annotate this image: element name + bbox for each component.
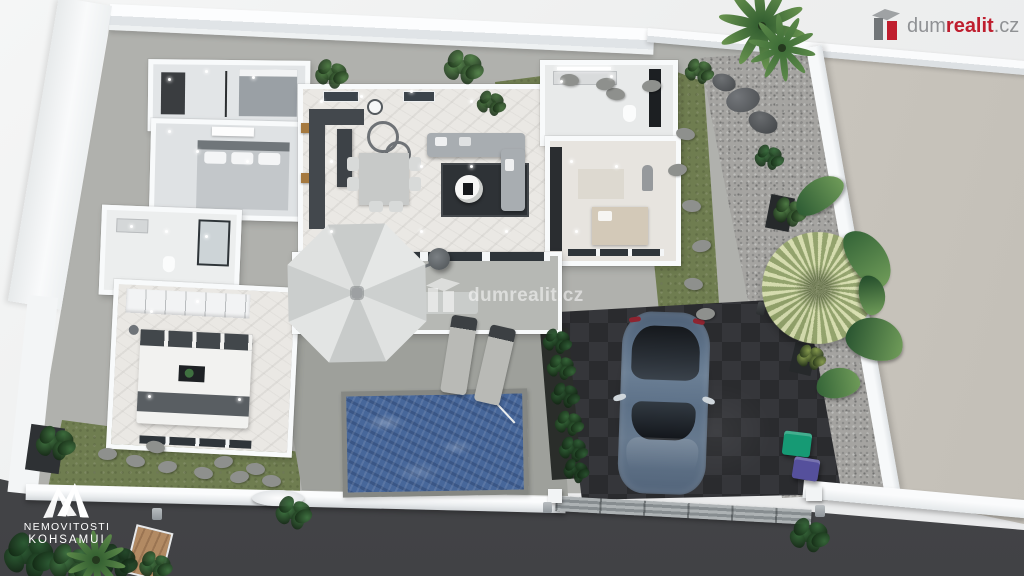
ceiling-spotlight xyxy=(470,100,473,103)
palm-center xyxy=(92,556,100,564)
rug xyxy=(578,169,624,199)
bed xyxy=(196,140,290,210)
dumrealit-box-icon xyxy=(426,276,460,316)
sofa-pillow xyxy=(459,137,471,146)
coffee-table-books xyxy=(463,183,473,195)
dining-chair xyxy=(369,201,383,212)
window xyxy=(323,91,359,102)
pillow xyxy=(204,151,226,164)
pillow xyxy=(258,153,280,166)
ceiling-spotlight xyxy=(470,165,473,168)
ceiling-spotlight xyxy=(410,90,413,93)
ceiling-spotlight xyxy=(196,150,199,153)
wall-lamp xyxy=(152,508,162,520)
ceiling-spotlight xyxy=(205,70,208,73)
dining-chair xyxy=(409,177,421,191)
ceiling-spotlight xyxy=(246,160,249,163)
ceiling-spotlight xyxy=(150,310,153,313)
mannequin xyxy=(642,165,653,191)
ceiling-spotlight xyxy=(165,230,168,233)
dumrealit-logo: dumrealit.cz xyxy=(872,8,1019,44)
wall-lamp xyxy=(815,505,825,517)
dining-chair xyxy=(347,157,359,171)
gate-pillar xyxy=(806,486,822,501)
ceiling-spotlight xyxy=(168,130,171,133)
agency-logo: NEMOVITOSTI KOHSAMUI xyxy=(8,482,126,546)
gate-pillar xyxy=(548,489,562,503)
led-mirror xyxy=(557,67,611,70)
logo-text-dum: dum xyxy=(907,15,946,38)
agency-name-line2: KOHSAMUI xyxy=(8,534,126,546)
sofa-pillow xyxy=(435,137,447,146)
window xyxy=(403,91,435,102)
ceiling-spotlight xyxy=(615,165,618,168)
logo-text-cz: .cz xyxy=(994,15,1020,38)
umbrella-hub xyxy=(352,288,362,298)
ceiling-spotlight xyxy=(330,160,333,163)
sofa-pillow xyxy=(505,159,514,171)
ceiling-spotlight xyxy=(168,78,171,81)
kitchen-counter xyxy=(309,109,325,229)
ceiling-spotlight xyxy=(130,225,133,228)
dining-chair xyxy=(409,157,421,171)
pillow xyxy=(231,152,253,165)
room-bathroom-2 xyxy=(540,60,678,146)
ceiling-spotlight xyxy=(205,235,208,238)
bed xyxy=(239,69,297,117)
ceiling-spotlight xyxy=(148,395,151,398)
toilet xyxy=(163,256,176,272)
ceiling-spotlight xyxy=(570,160,573,163)
wall-lamp xyxy=(543,502,552,513)
box-icon-left xyxy=(874,18,883,40)
agency-name-line1: NEMOVITOSTI xyxy=(8,521,126,533)
ceiling-spotlight xyxy=(252,76,255,79)
bed-runner xyxy=(137,391,250,416)
sliding-glass-door xyxy=(568,249,664,256)
waste-bin-purple xyxy=(791,456,820,482)
daybed-pillow xyxy=(598,211,612,221)
box-icon-right xyxy=(887,21,897,40)
toilet xyxy=(623,105,636,122)
dumrealit-box-icon xyxy=(872,9,900,43)
twin-peaks-icon xyxy=(40,482,94,518)
center-watermark: dumrealit.cz xyxy=(426,274,584,318)
stepping-stone xyxy=(98,448,117,460)
glass-partition xyxy=(225,71,227,117)
ceiling-spotlight xyxy=(575,230,578,233)
room-walk-in-closet xyxy=(545,136,681,266)
ceiling-spotlight xyxy=(360,95,363,98)
dining-chair xyxy=(347,177,359,191)
waste-bin-green xyxy=(782,430,813,457)
shower-glass xyxy=(197,219,231,266)
car-rear-glass-roof xyxy=(631,325,701,381)
box-icon-left xyxy=(428,288,438,312)
umbrella-base xyxy=(428,248,450,270)
ceiling-spotlight xyxy=(196,300,199,303)
floorplan-render: dumrealit.cz dumrealit.cz NEMOVITOSTI KO… xyxy=(0,0,1024,576)
shower-glass xyxy=(649,69,661,127)
watermark-text: dumrealit.cz xyxy=(468,285,584,307)
ceiling-spotlight xyxy=(420,165,423,168)
ceiling-spotlight xyxy=(505,230,508,233)
parked-car xyxy=(617,311,711,496)
ceiling-spotlight xyxy=(610,75,613,78)
wardrobe xyxy=(161,72,185,114)
ceiling-spotlight xyxy=(420,230,423,233)
wardrobe-dark xyxy=(550,147,562,251)
headboard xyxy=(197,140,289,151)
box-icon-right xyxy=(443,291,454,312)
bed xyxy=(136,329,252,428)
room-master-bedroom xyxy=(106,279,300,458)
room-bedroom-2 xyxy=(149,118,309,222)
ceiling-spotlight xyxy=(330,230,333,233)
dining-table xyxy=(359,153,409,205)
dining-chair xyxy=(389,201,403,212)
ceiling-spotlight xyxy=(320,100,323,103)
ceiling-spotlight xyxy=(560,80,563,83)
logo-text-realit: realit xyxy=(946,15,994,38)
ac-unit xyxy=(212,127,254,137)
car-windshield xyxy=(631,401,696,441)
wall-clock xyxy=(367,99,383,115)
ceiling-spotlight xyxy=(238,398,241,401)
palm-center xyxy=(778,44,786,52)
